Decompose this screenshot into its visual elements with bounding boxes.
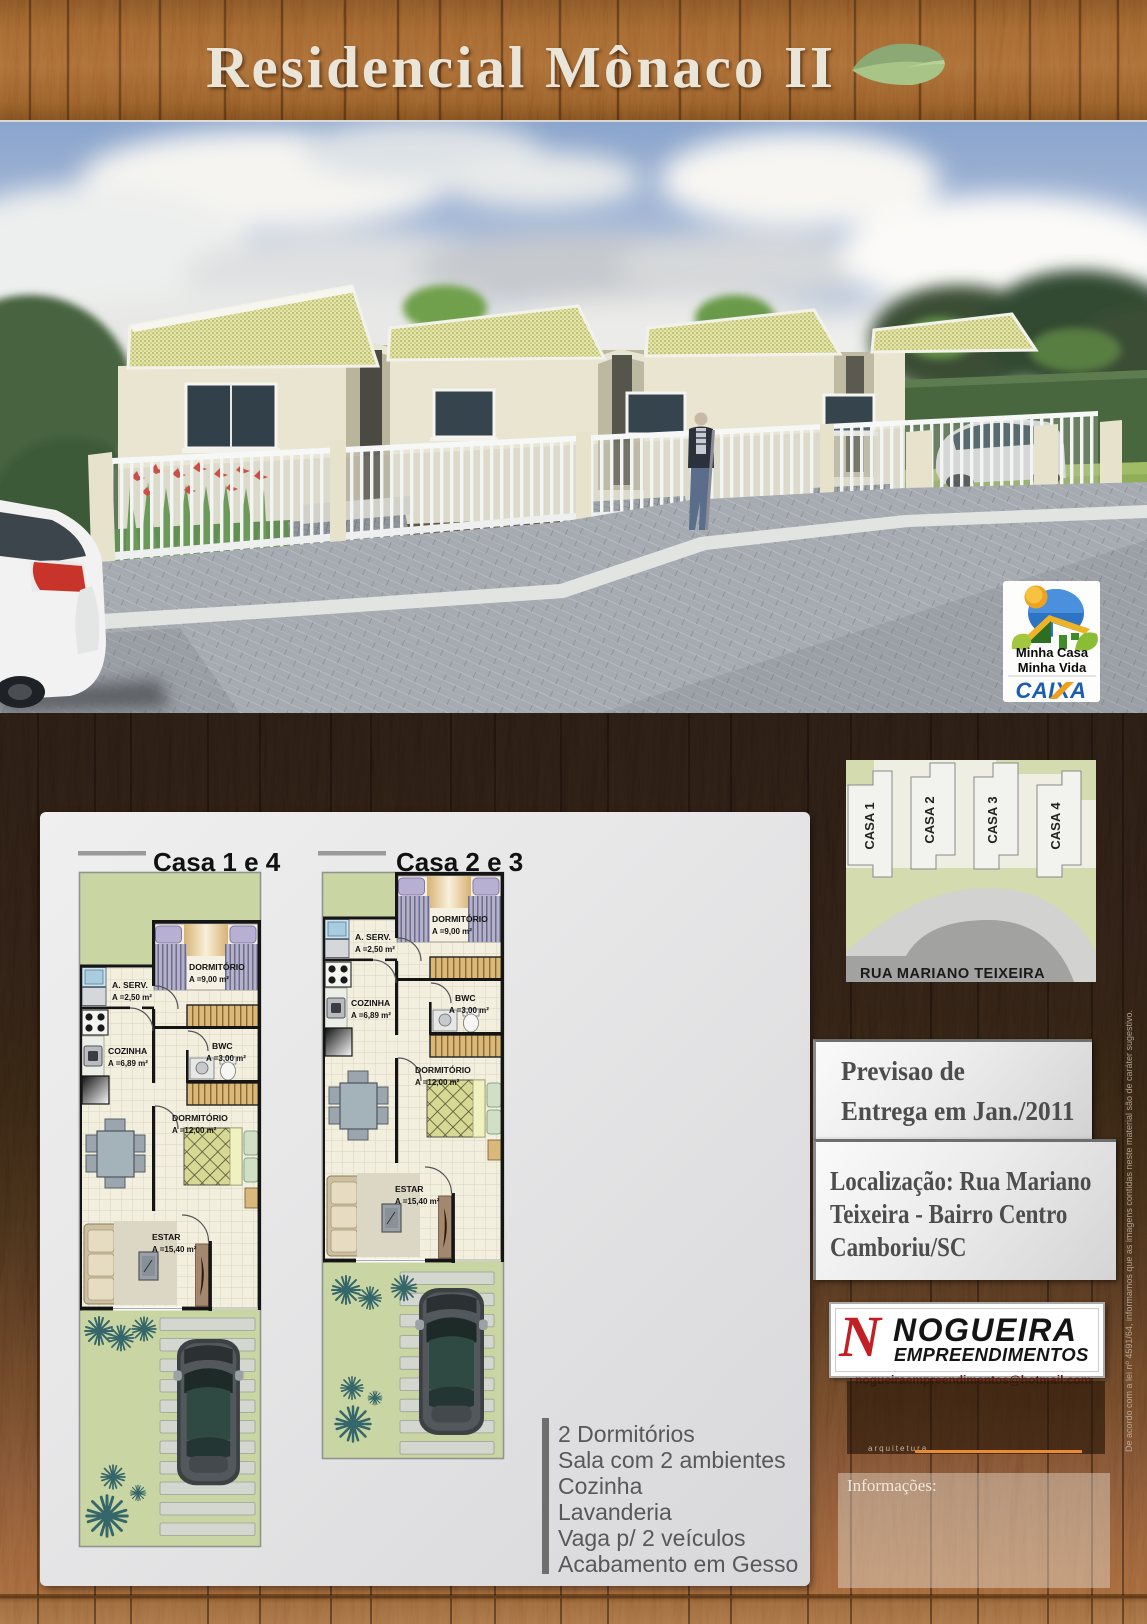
svg-text:DORMITÓRIO: DORMITÓRIO [189, 961, 245, 972]
svg-text:A =2,50 m²: A =2,50 m² [112, 993, 152, 1002]
svg-text:COZINHA: COZINHA [108, 1046, 147, 1056]
svg-text:CASA 4: CASA 4 [1048, 802, 1063, 850]
svg-text:A. SERV.: A. SERV. [112, 980, 148, 990]
svg-text:CASA 2: CASA 2 [922, 796, 937, 843]
svg-text:Minha Casa: Minha Casa [1016, 645, 1089, 660]
svg-text:EMPREENDIMENTOS: EMPREENDIMENTOS [894, 1344, 1089, 1365]
svg-text:RUA MARIANO TEIXEIRA: RUA MARIANO TEIXEIRA [860, 966, 1045, 982]
svg-text:A =6,89 m²: A =6,89 m² [108, 1059, 148, 1068]
svg-text:A =12,00 m²: A =12,00 m² [172, 1126, 217, 1135]
svg-text:NOGUEIRA: NOGUEIRA [893, 1312, 1077, 1348]
svg-text:BWC: BWC [212, 1041, 233, 1051]
svg-text:A =15,40 m²: A =15,40 m² [152, 1245, 197, 1254]
svg-text:A =9,00 m²: A =9,00 m² [189, 975, 229, 984]
svg-text:A =3,00 m²: A =3,00 m² [206, 1054, 246, 1063]
svg-text:CAIXA: CAIXA [1016, 678, 1087, 703]
svg-text:ESTAR: ESTAR [152, 1232, 181, 1242]
svg-text:CASA 3: CASA 3 [985, 796, 1000, 843]
svg-text:DORMITÓRIO: DORMITÓRIO [172, 1112, 228, 1123]
svg-text:N: N [838, 1304, 883, 1369]
svg-text:CASA 1: CASA 1 [862, 802, 877, 849]
svg-text:Minha Vida: Minha Vida [1018, 660, 1087, 675]
